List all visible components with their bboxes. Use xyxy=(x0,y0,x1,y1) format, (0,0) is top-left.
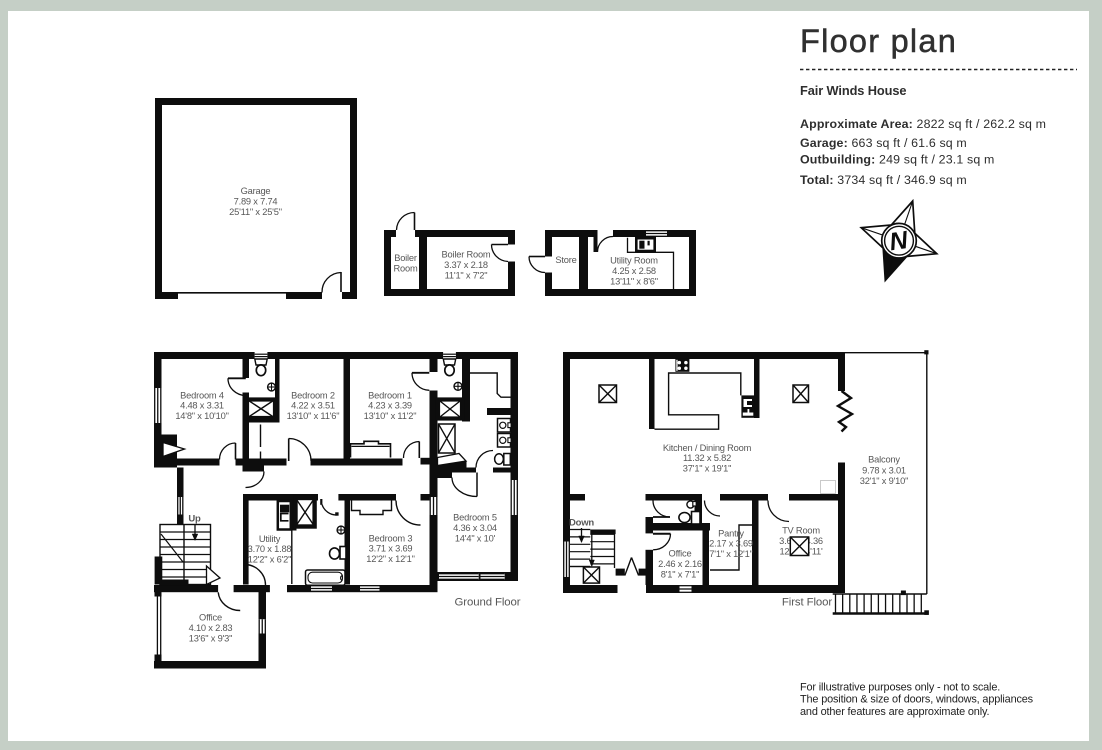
svg-text:Floor plan: Floor plan xyxy=(800,23,957,59)
svg-text:Bedroom 5: Bedroom 5 xyxy=(453,513,497,523)
svg-text:12'2" x 6'2": 12'2" x 6'2" xyxy=(248,555,291,565)
svg-text:Balcony: Balcony xyxy=(868,455,900,465)
svg-text:Pantry: Pantry xyxy=(718,528,744,538)
svg-text:Kitchen / Dining Room: Kitchen / Dining Room xyxy=(663,443,752,453)
svg-text:Down: Down xyxy=(569,518,594,529)
svg-text:Room: Room xyxy=(394,264,418,274)
svg-text:Store: Store xyxy=(555,255,576,265)
svg-text:First Floor: First Floor xyxy=(782,597,832,609)
svg-text:3.37 x 2.18: 3.37 x 2.18 xyxy=(444,260,488,270)
svg-text:Utility: Utility xyxy=(259,534,281,544)
svg-text:For illustrative purposes only: For illustrative purposes only - not to … xyxy=(800,682,1000,694)
svg-text:Utility Room: Utility Room xyxy=(610,256,658,266)
svg-text:37'1" x 19'1": 37'1" x 19'1" xyxy=(683,464,731,474)
svg-text:14'4" x 10': 14'4" x 10' xyxy=(455,533,496,543)
svg-text:32'1" x 9'10": 32'1" x 9'10" xyxy=(860,476,908,486)
svg-text:7.89 x 7.74: 7.89 x 7.74 xyxy=(234,196,278,206)
svg-text:25'11" x 25'5": 25'11" x 25'5" xyxy=(229,207,282,217)
svg-text:Garage: Garage xyxy=(241,186,271,196)
svg-text:The position & size of doors,: The position & size of doors, windows, a… xyxy=(800,694,1034,706)
svg-text:Office: Office xyxy=(669,549,692,559)
svg-text:and other features are approxi: and other features are approximate only. xyxy=(800,706,989,718)
svg-text:7'1" x 12'1": 7'1" x 12'1" xyxy=(709,549,752,559)
svg-text:Bedroom 1: Bedroom 1 xyxy=(368,390,412,400)
svg-text:Bedroom 4: Bedroom 4 xyxy=(180,390,224,400)
svg-text:2.17 x 3.69: 2.17 x 3.69 xyxy=(709,539,753,549)
svg-text:9.78 x 3.01: 9.78 x 3.01 xyxy=(862,465,906,475)
svg-text:Ground Floor: Ground Floor xyxy=(455,597,521,609)
svg-text:Boiler: Boiler xyxy=(394,253,417,263)
svg-text:4.23 x 3.39: 4.23 x 3.39 xyxy=(368,401,412,411)
svg-text:13'10" x 11'6": 13'10" x 11'6" xyxy=(287,411,340,421)
svg-text:TV Room: TV Room xyxy=(782,526,820,536)
svg-text:13'6" x 9'3": 13'6" x 9'3" xyxy=(189,633,232,643)
svg-text:8'1" x 7'1": 8'1" x 7'1" xyxy=(661,570,699,580)
svg-text:3.70 x 1.88: 3.70 x 1.88 xyxy=(248,544,292,554)
svg-text:3.71 x 3.69: 3.71 x 3.69 xyxy=(369,544,413,554)
svg-text:4.48 x 3.31: 4.48 x 3.31 xyxy=(180,401,224,411)
svg-text:Bedroom 3: Bedroom 3 xyxy=(369,533,413,543)
svg-text:14'8" x 10'10": 14'8" x 10'10" xyxy=(175,411,228,421)
svg-text:Outbuilding: 249 sq ft / 23.1: Outbuilding: 249 sq ft / 23.1 sq m xyxy=(800,153,994,167)
svg-text:4.25 x 2.58: 4.25 x 2.58 xyxy=(612,266,656,276)
svg-text:12'2" x 12'1": 12'2" x 12'1" xyxy=(366,554,414,564)
svg-text:Approximate Area: 2822 sq ft /: Approximate Area: 2822 sq ft / 262.2 sq … xyxy=(800,117,1046,131)
svg-text:13'10" x 11'2": 13'10" x 11'2" xyxy=(364,411,417,421)
svg-text:Garage: 663 sq ft / 61.6 sq m: Garage: 663 sq ft / 61.6 sq m xyxy=(800,136,967,150)
svg-text:4.36 x 3.04: 4.36 x 3.04 xyxy=(453,523,497,533)
svg-text:4.22 x 3.51: 4.22 x 3.51 xyxy=(291,401,335,411)
svg-text:Fair Winds House: Fair Winds House xyxy=(800,83,906,98)
svg-text:13'11" x 8'6": 13'11" x 8'6" xyxy=(610,276,658,286)
svg-text:11'1" x 7'2": 11'1" x 7'2" xyxy=(445,270,488,280)
svg-text:Up: Up xyxy=(188,514,201,525)
svg-text:Boiler Room: Boiler Room xyxy=(442,250,491,260)
svg-text:4.10 x 2.83: 4.10 x 2.83 xyxy=(189,623,233,633)
svg-text:Total: 3734 sq ft / 346.9 sq m: Total: 3734 sq ft / 346.9 sq m xyxy=(800,173,967,187)
svg-text:Office: Office xyxy=(199,613,222,623)
svg-text:Bedroom 2: Bedroom 2 xyxy=(291,390,335,400)
svg-text:2.46 x 2.16: 2.46 x 2.16 xyxy=(658,559,702,569)
svg-text:11.32 x 5.82: 11.32 x 5.82 xyxy=(683,453,731,463)
